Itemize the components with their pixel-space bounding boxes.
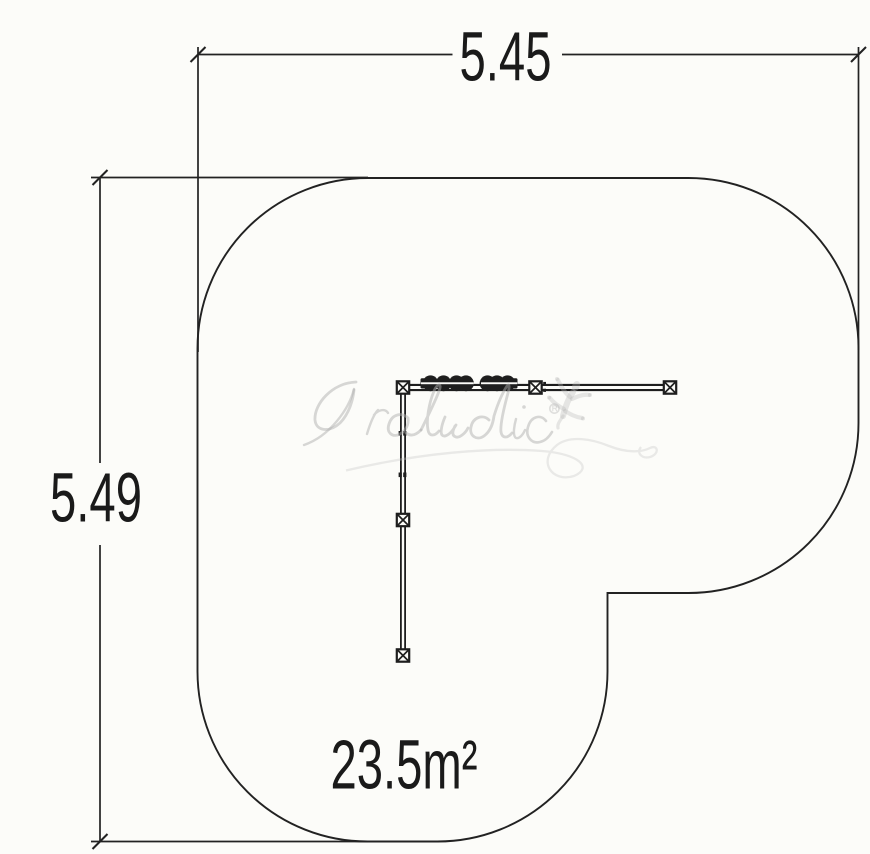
svg-text:5.45: 5.45 xyxy=(460,17,552,95)
svg-text:23.5m²: 23.5m² xyxy=(330,725,477,803)
svg-text:5.49: 5.49 xyxy=(50,458,142,536)
